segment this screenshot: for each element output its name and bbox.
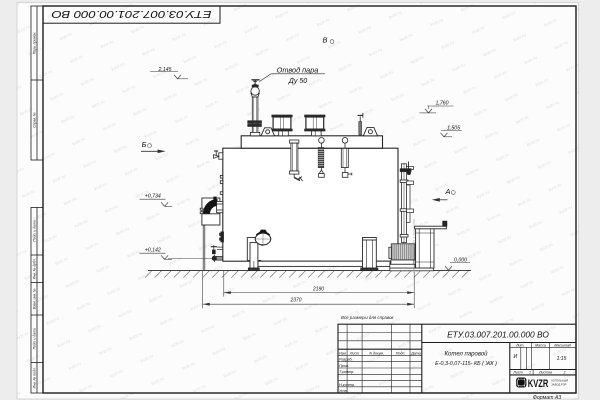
svg-text:1: 1 bbox=[529, 371, 531, 375]
svg-text:Пров.: Пров. bbox=[339, 364, 349, 368]
svg-text:1:15: 1:15 bbox=[557, 356, 567, 362]
svg-text:Т.контр.: Т.контр. bbox=[339, 370, 354, 374]
svg-text:Б: Б bbox=[142, 140, 147, 149]
svg-text:2370: 2370 bbox=[289, 298, 301, 304]
svg-text:Лист: Лист bbox=[349, 351, 359, 355]
svg-text:Масштаб: Масштаб bbox=[554, 343, 572, 347]
svg-text:Ду 50: Ду 50 bbox=[288, 78, 307, 85]
svg-text:Справ. №: Справ. № bbox=[32, 112, 36, 128]
svg-text:Отвод пара: Отвод пара bbox=[277, 65, 319, 74]
svg-text:2,145: 2,145 bbox=[158, 67, 172, 73]
svg-text:Лит.: Лит. bbox=[515, 343, 524, 347]
svg-text:+0,142: +0,142 bbox=[145, 248, 161, 254]
svg-text:Инв. № подл.: Инв. № подл. bbox=[32, 367, 36, 388]
svg-text:Перв. примен.: Перв. примен. bbox=[32, 32, 36, 55]
svg-text:Дата: Дата bbox=[410, 351, 420, 355]
svg-text:Н.контр.: Н.контр. bbox=[339, 383, 355, 387]
svg-text:И: И bbox=[513, 354, 517, 360]
svg-text:ЕТУ.03.007.201.00.000 ВО: ЕТУ.03.007.201.00.000 ВО bbox=[447, 330, 549, 340]
svg-text:ЗАВОД РЭР: ЗАВОД РЭР bbox=[551, 382, 566, 386]
svg-text:Е-0,3-0,07-115- КБ ( ЖК ): Е-0,3-0,07-115- КБ ( ЖК ) bbox=[435, 361, 497, 367]
svg-text:Подп. и дата: Подп. и дата bbox=[32, 328, 36, 349]
svg-text:Подп.: Подп. bbox=[396, 351, 406, 355]
svg-text:Масса: Масса bbox=[535, 343, 546, 347]
svg-text:Изм: Изм bbox=[339, 351, 346, 355]
svg-text:А: А bbox=[445, 187, 451, 196]
svg-text:Утв.: Утв. bbox=[339, 389, 348, 393]
svg-text:N докум.: N докум. bbox=[369, 351, 384, 355]
svg-text:ЕТУ.03.007.201.00.000 ВО: ЕТУ.03.007.201.00.000 ВО bbox=[51, 8, 211, 19]
svg-text:Котел паровой: Котел паровой bbox=[444, 351, 488, 358]
svg-text:В: В bbox=[323, 36, 328, 45]
svg-text:Подп. и дата: Подп. и дата bbox=[32, 220, 36, 241]
svg-text:Листов: Листов bbox=[538, 371, 552, 375]
svg-text:Лист: Лист bbox=[512, 371, 522, 375]
svg-text:Разраб.: Разраб. bbox=[339, 358, 353, 362]
svg-text:2: 2 bbox=[563, 371, 566, 375]
svg-text:2190: 2190 bbox=[312, 287, 324, 293]
svg-text:КОТЕЛЬНЫЙ: КОТЕЛЬНЫЙ bbox=[551, 379, 568, 383]
svg-text:Взам. инв. №: Взам. инв. № bbox=[32, 288, 36, 309]
svg-text:Формат А3: Формат А3 bbox=[533, 395, 561, 400]
svg-text:Все размеры для справок: Все размеры для справок bbox=[341, 315, 395, 320]
svg-text:Инв. № дубл.: Инв. № дубл. bbox=[32, 258, 36, 279]
svg-text:+0,734: +0,734 bbox=[145, 194, 161, 200]
svg-text:KVZR: KVZR bbox=[528, 378, 549, 390]
